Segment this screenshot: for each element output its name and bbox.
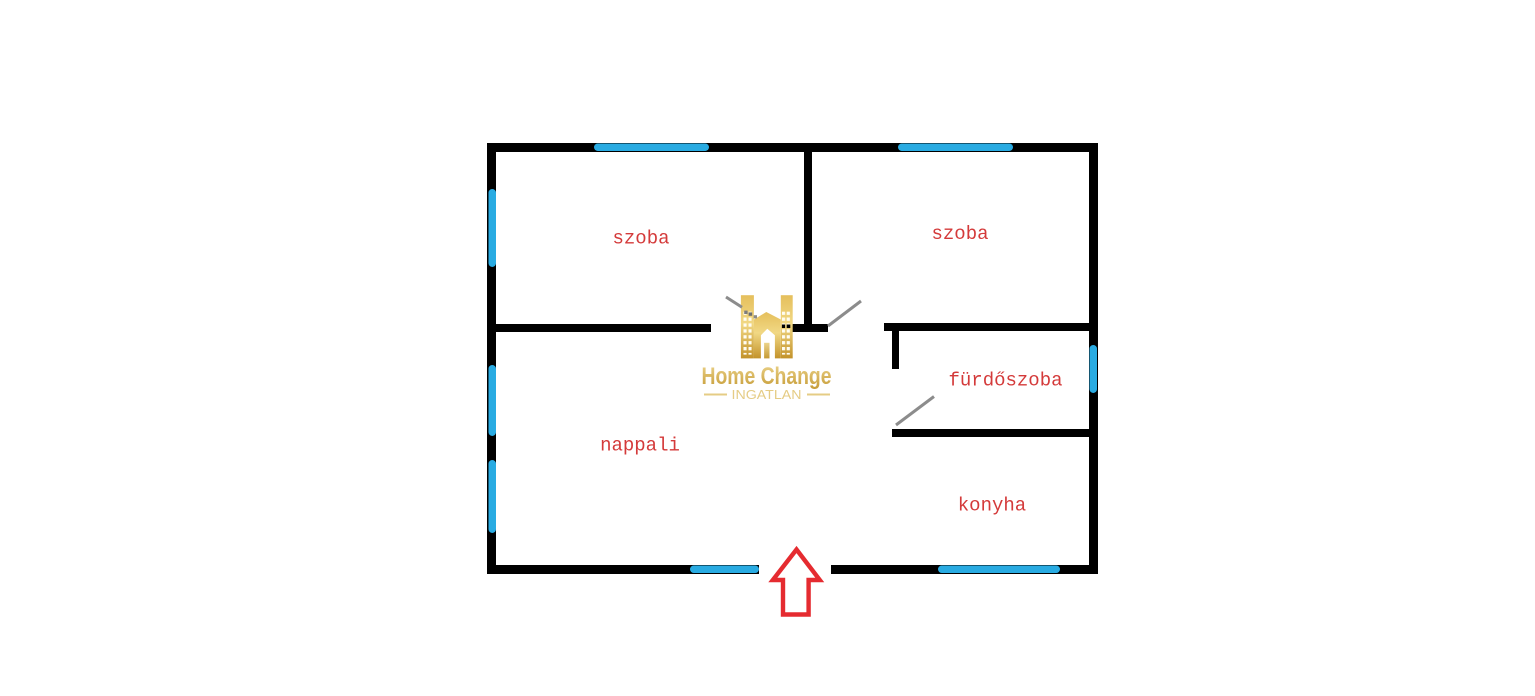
- svg-text:szoba: szoba: [931, 223, 988, 245]
- svg-text:INGATLAN: INGATLAN: [732, 387, 802, 402]
- svg-text:Home Change: Home Change: [702, 363, 832, 390]
- svg-text:szoba: szoba: [612, 228, 669, 250]
- svg-text:fürdőszoba: fürdőszoba: [948, 370, 1062, 392]
- svg-text:konyha: konyha: [958, 495, 1026, 517]
- svg-text:nappali: nappali: [600, 435, 680, 457]
